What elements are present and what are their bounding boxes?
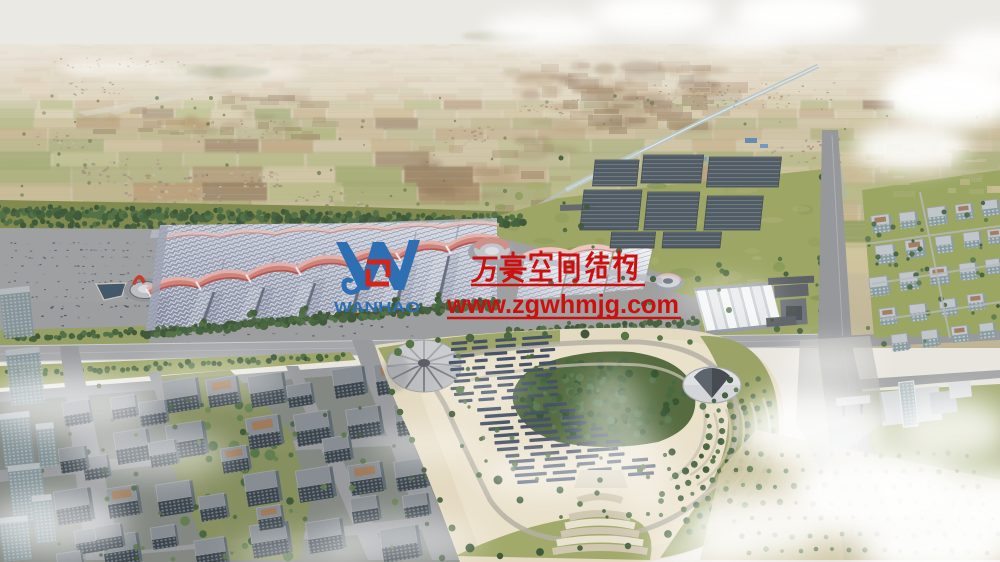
svg-text:WANHAO: WANHAO <box>334 299 420 316</box>
svg-text:www.zgwhmjg.com: www.zgwhmjg.com <box>446 289 679 319</box>
